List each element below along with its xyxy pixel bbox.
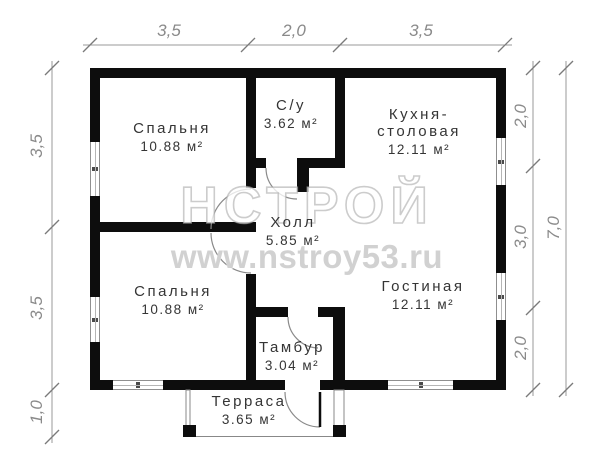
room-area: 10.88 м² <box>134 301 212 318</box>
room-label-bedroom-top: Спальня 10.88 м² <box>133 120 211 155</box>
dimension-label-right-3: 2,0 <box>511 336 531 360</box>
room-label-terrace: Терраса 3.65 м² <box>211 393 286 428</box>
room-label-living: Гостиная 12.11 м² <box>382 278 465 313</box>
door-arc-terrace <box>285 392 320 427</box>
room-area: 10.88 м² <box>133 138 211 155</box>
terrace-wall-left <box>186 390 190 426</box>
dimension-label-left-2: 3,5 <box>27 296 47 320</box>
room-name: С/у <box>264 97 318 114</box>
dimension-label-top-3: 3,5 <box>409 21 433 41</box>
room-area: 12.11 м² <box>377 141 461 158</box>
room-area: 3.62 м² <box>264 115 318 132</box>
terrace-post-left <box>183 425 196 437</box>
dimension-label-right-2: 3,0 <box>511 225 531 249</box>
floor-plan: НСТРОЙ www.nstroy53.ru Спальня 10.88 м² … <box>0 0 606 450</box>
room-area: 3.04 м² <box>259 357 325 374</box>
room-name: Холл <box>266 214 320 231</box>
room-name: Кухня- <box>377 106 461 123</box>
room-label-wc: С/у 3.62 м² <box>264 97 318 132</box>
dimension-label-right-total: 7,0 <box>544 216 564 240</box>
dimension-label-top-1: 3,5 <box>157 21 181 41</box>
dimension-label-top-2: 2,0 <box>282 21 306 41</box>
room-name: Терраса <box>211 393 286 410</box>
room-name: Спальня <box>133 120 211 137</box>
room-name: столовая <box>377 123 461 140</box>
dimension-label-left-1: 3,5 <box>27 134 47 158</box>
room-label-tambour: Тамбур 3.04 м² <box>259 339 325 374</box>
room-area: 12.11 м² <box>382 296 465 313</box>
room-area: 5.85 м² <box>266 232 320 249</box>
room-name: Тамбур <box>259 339 325 356</box>
terrace-post-right <box>333 425 346 437</box>
room-label-kitchen: Кухня- столовая 12.11 м² <box>377 106 461 158</box>
room-label-hall: Холл 5.85 м² <box>266 214 320 249</box>
room-area: 3.65 м² <box>211 411 286 428</box>
terrace-wall-right <box>334 390 344 426</box>
room-name: Гостиная <box>382 278 465 295</box>
room-label-bedroom-bottom: Спальня 10.88 м² <box>134 283 212 318</box>
dimension-label-right-1: 2,0 <box>511 104 531 128</box>
dimension-label-left-3: 1,0 <box>27 400 47 424</box>
room-name: Спальня <box>134 283 212 300</box>
